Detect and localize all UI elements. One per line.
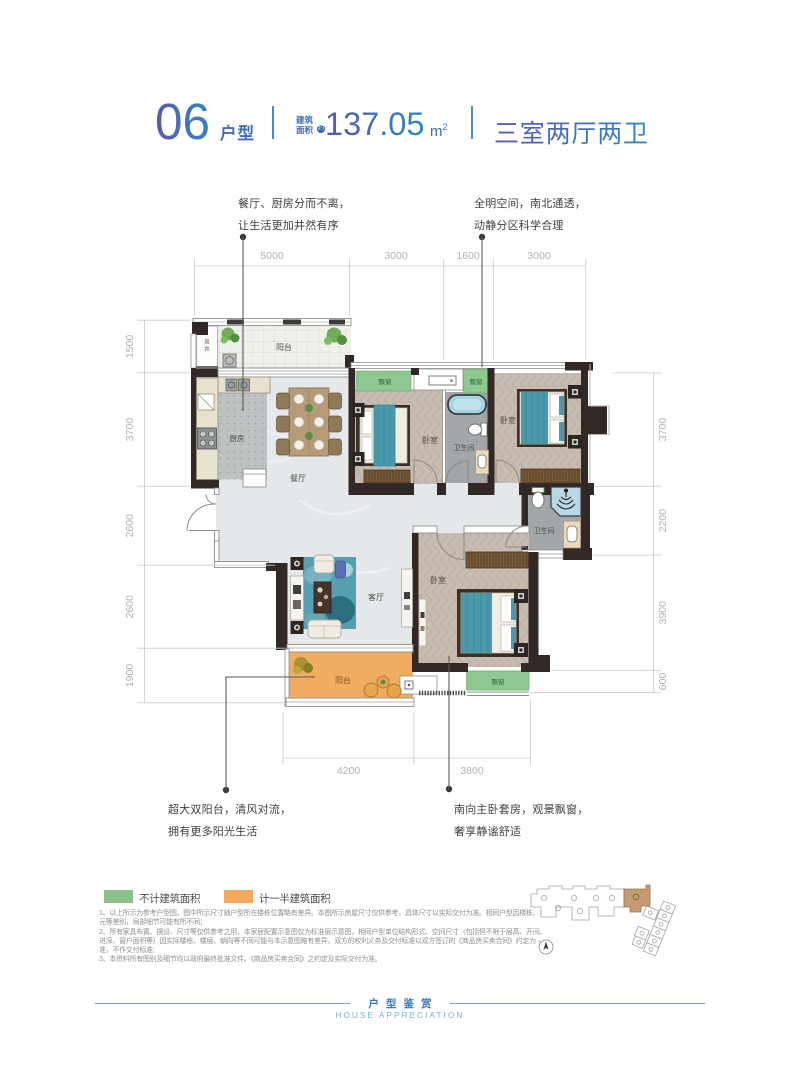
svg-text:1600: 1600 — [456, 250, 480, 262]
svg-text:3700: 3700 — [657, 418, 669, 442]
svg-text:600: 600 — [657, 673, 669, 691]
svg-text:卧室: 卧室 — [500, 415, 516, 425]
svg-text:风: 风 — [204, 339, 210, 346]
svg-text:卫生间: 卫生间 — [534, 526, 555, 535]
svg-text:2600: 2600 — [124, 595, 136, 619]
svg-text:1900: 1900 — [124, 664, 136, 688]
svg-text:3900: 3900 — [657, 601, 669, 625]
svg-text:厨房: 厨房 — [230, 433, 245, 443]
svg-text:2600: 2600 — [124, 514, 136, 538]
svg-text:卫生间: 卫生间 — [454, 443, 475, 452]
svg-text:3700: 3700 — [124, 418, 136, 442]
svg-text:阳台: 阳台 — [276, 342, 292, 352]
svg-text:3000: 3000 — [384, 250, 408, 262]
svg-text:5000: 5000 — [260, 250, 284, 262]
svg-text:餐厅: 餐厅 — [290, 474, 306, 483]
svg-text:客厅: 客厅 — [368, 592, 384, 602]
svg-text:飘窗: 飘窗 — [470, 377, 483, 386]
svg-text:1500: 1500 — [124, 335, 136, 359]
svg-text:4200: 4200 — [337, 765, 361, 777]
svg-text:3000: 3000 — [527, 250, 551, 262]
svg-text:井: 井 — [204, 345, 210, 353]
svg-text:卧室: 卧室 — [430, 575, 446, 585]
svg-text:飘窗: 飘窗 — [492, 677, 505, 686]
svg-text:2200: 2200 — [657, 509, 669, 533]
svg-text:卧室: 卧室 — [422, 435, 438, 445]
svg-text:飘窗: 飘窗 — [379, 377, 392, 386]
svg-text:3800: 3800 — [460, 765, 484, 777]
svg-text:阳台: 阳台 — [335, 675, 351, 685]
